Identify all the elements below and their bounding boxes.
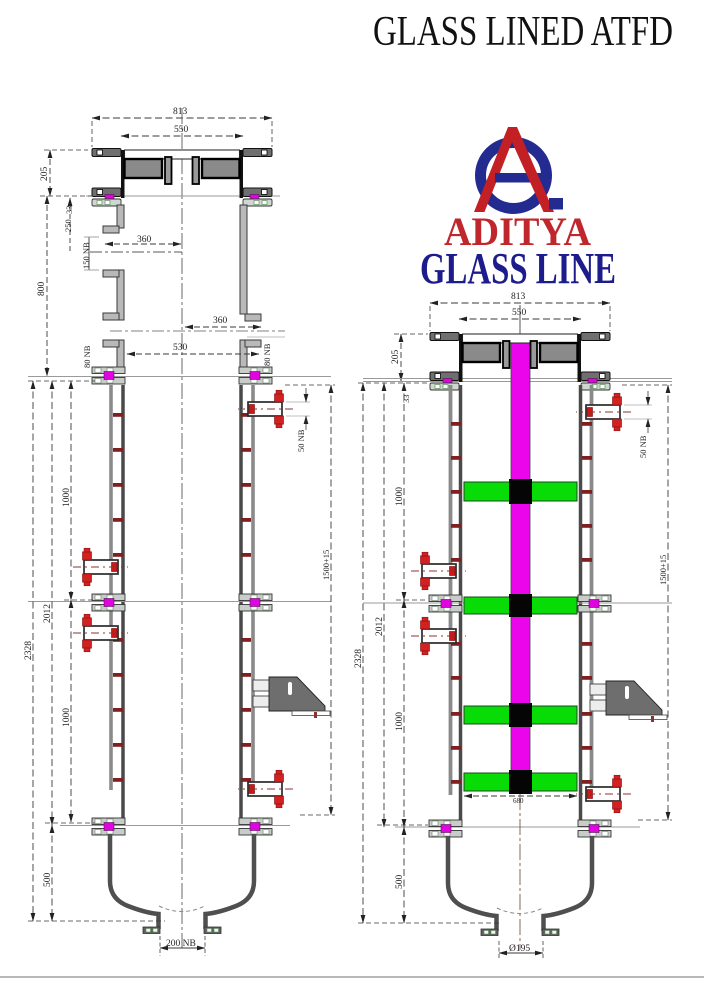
svg-text:550: 550 <box>174 125 189 135</box>
svg-text:1000: 1000 <box>395 487 405 506</box>
svg-text:360: 360 <box>137 235 152 245</box>
svg-text:360: 360 <box>213 316 228 326</box>
svg-text:33: 33 <box>64 206 74 215</box>
svg-text:GLASS LINED ATFD: GLASS LINED ATFD <box>373 9 673 55</box>
svg-text:205: 205 <box>391 350 401 365</box>
svg-text:1500+15: 1500+15 <box>321 550 331 580</box>
svg-text:813: 813 <box>511 292 526 302</box>
svg-text:550: 550 <box>512 308 527 318</box>
svg-text:50 NB: 50 NB <box>296 429 306 452</box>
svg-text:2328: 2328 <box>24 641 34 660</box>
svg-text:1000: 1000 <box>395 712 405 731</box>
svg-text:250: 250 <box>63 219 73 232</box>
svg-text:GLASS LINE: GLASS LINE <box>420 244 616 293</box>
svg-text:200 NB: 200 NB <box>166 939 196 949</box>
svg-text:205: 205 <box>40 167 50 182</box>
svg-text:500: 500 <box>43 873 53 888</box>
svg-text:2012: 2012 <box>43 604 53 623</box>
svg-text:33: 33 <box>401 395 411 404</box>
svg-text:2012: 2012 <box>375 617 385 636</box>
svg-text:530: 530 <box>173 343 188 353</box>
svg-text:Ø195: Ø195 <box>509 944 530 954</box>
svg-text:150 NB: 150 NB <box>81 242 91 269</box>
svg-text:500: 500 <box>395 875 405 890</box>
svg-text:680: 680 <box>513 797 524 805</box>
svg-text:800: 800 <box>37 282 47 297</box>
svg-text:1000: 1000 <box>62 708 72 727</box>
svg-text:50 NB: 50 NB <box>638 435 648 458</box>
svg-text:1500+15: 1500+15 <box>658 555 668 585</box>
svg-text:2328: 2328 <box>354 649 364 668</box>
svg-text:1000: 1000 <box>62 488 72 507</box>
svg-text:80 NB: 80 NB <box>262 343 272 366</box>
svg-text:80 NB: 80 NB <box>82 345 92 368</box>
svg-text:813: 813 <box>173 107 188 117</box>
